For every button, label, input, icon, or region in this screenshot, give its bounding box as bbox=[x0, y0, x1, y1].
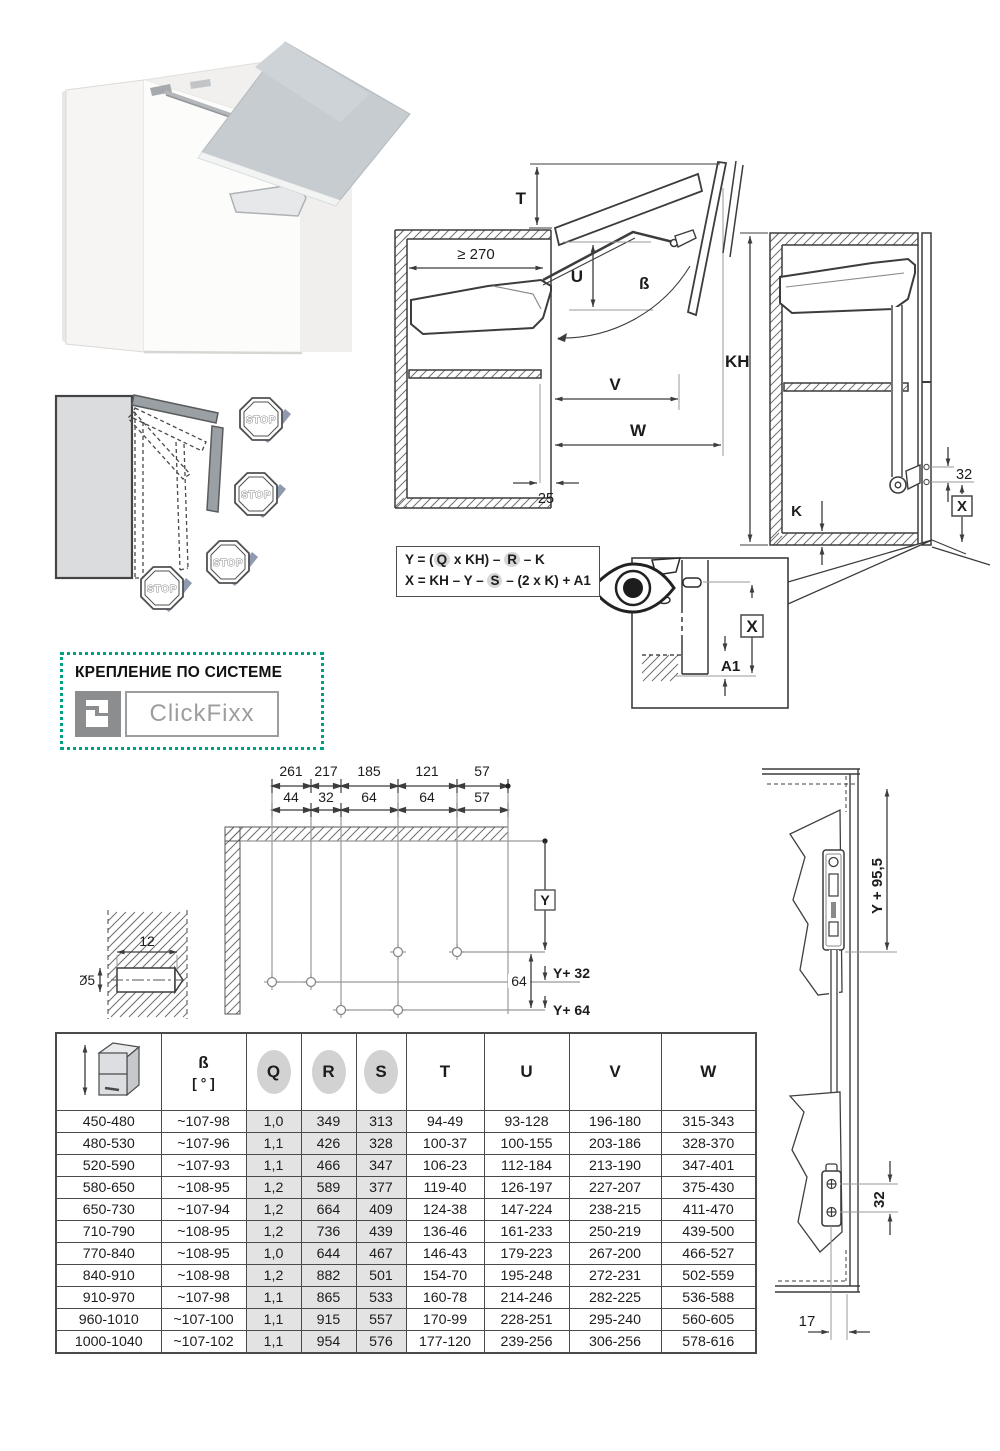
table-cell: 1,1 bbox=[246, 1331, 301, 1354]
table-cell: 313 bbox=[356, 1111, 406, 1133]
table-cell: 915 bbox=[301, 1309, 356, 1331]
table-cell: 578-616 bbox=[661, 1331, 756, 1354]
table-cell: 112-184 bbox=[484, 1155, 569, 1177]
r-oval: R bbox=[312, 1050, 346, 1094]
anchor-dot bbox=[505, 783, 510, 788]
table-cell: ~108-95 bbox=[161, 1243, 246, 1265]
table-cell: 710-790 bbox=[56, 1221, 161, 1243]
table-cell: 501 bbox=[356, 1265, 406, 1287]
drilling-pattern-diagram: 261 217 185 121 57 44 32 64 64 57 bbox=[80, 762, 670, 1034]
door-mid-position bbox=[207, 426, 223, 512]
catalog-page: STOP STOP STOP STOP T ≥ 270 bbox=[0, 0, 1000, 1451]
table-cell: 295-240 bbox=[569, 1309, 661, 1331]
construction-lines bbox=[272, 793, 580, 1014]
table-cell: 1,2 bbox=[246, 1177, 301, 1199]
detail-view: X A1 bbox=[600, 538, 995, 723]
col-header-r: R bbox=[301, 1033, 356, 1111]
table-cell: 126-197 bbox=[484, 1177, 569, 1199]
table-cell: 664 bbox=[301, 1199, 356, 1221]
table-cell: 93-128 bbox=[484, 1111, 569, 1133]
dim-label-u: U bbox=[571, 267, 583, 286]
clickfixx-logo-row: ClickFixx bbox=[75, 691, 309, 737]
cabinet-photo-illustration bbox=[40, 22, 412, 370]
col-header-s: S bbox=[356, 1033, 406, 1111]
table-cell: 349 bbox=[301, 1111, 356, 1133]
table-cell: ~108-95 bbox=[161, 1177, 246, 1199]
table-cell: 1,2 bbox=[246, 1265, 301, 1287]
dim-57b: 57 bbox=[474, 789, 490, 805]
table-cell: 770-840 bbox=[56, 1243, 161, 1265]
cabinet-bottom-wall-hatch bbox=[395, 498, 551, 508]
table-cell: 315-343 bbox=[661, 1111, 756, 1133]
dim-label-y32: Y+ 32 bbox=[553, 965, 590, 981]
dim-label-x: X bbox=[746, 617, 758, 636]
table-cell: 282-225 bbox=[569, 1287, 661, 1309]
table-cell: 589 bbox=[301, 1177, 356, 1199]
table-cell: ~107-93 bbox=[161, 1155, 246, 1177]
table-cell: 1000-1040 bbox=[56, 1331, 161, 1354]
table-cell: 106-23 bbox=[406, 1155, 484, 1177]
table-cell: 306-256 bbox=[569, 1331, 661, 1354]
eye-pupil bbox=[623, 578, 643, 598]
table-body: 450-480~107-981,034931394-4993-128196-18… bbox=[56, 1111, 756, 1354]
s-highlight: S bbox=[487, 573, 502, 588]
col-header-beta: ß [ ° ] bbox=[161, 1033, 246, 1111]
dim-185: 185 bbox=[357, 763, 381, 779]
table-cell: ~107-98 bbox=[161, 1111, 246, 1133]
section-diagram-open: T ≥ 270 U ß V W 25 bbox=[393, 158, 738, 550]
table-cell: 1,0 bbox=[246, 1243, 301, 1265]
closed-door-panel bbox=[922, 233, 931, 545]
cabinet-height-icon-cell bbox=[56, 1033, 161, 1111]
table-cell: 375-430 bbox=[661, 1177, 756, 1199]
drill-hole-section bbox=[117, 968, 175, 992]
table-cell: 910-970 bbox=[56, 1287, 161, 1309]
table-cell: ~107-98 bbox=[161, 1287, 246, 1309]
table-cell: 1,1 bbox=[246, 1155, 301, 1177]
table-cell: 213-190 bbox=[569, 1155, 661, 1177]
table-cell: 100-37 bbox=[406, 1133, 484, 1155]
table-cell: 1,2 bbox=[246, 1199, 301, 1221]
dim-32: 32 bbox=[318, 789, 334, 805]
table-cell: 250-219 bbox=[569, 1221, 661, 1243]
lift-mechanism bbox=[780, 259, 915, 313]
table-cell: 840-910 bbox=[56, 1265, 161, 1287]
table-cell: 480-530 bbox=[56, 1133, 161, 1155]
table-row: 770-840~108-951,0644467146-43179-223267-… bbox=[56, 1243, 756, 1265]
top-wall-hatch bbox=[770, 233, 918, 245]
table-cell: ~107-102 bbox=[161, 1331, 246, 1354]
table-cell: ~108-98 bbox=[161, 1265, 246, 1287]
table-cell: 179-223 bbox=[484, 1243, 569, 1265]
opening-stages-diagram: STOP STOP STOP STOP bbox=[42, 382, 324, 634]
table-cell: 347-401 bbox=[661, 1155, 756, 1177]
side-mounting-diagram: Y + 95,5 32 17 bbox=[750, 762, 995, 1347]
formula-box: Y = (Q x KH) – R – K X = KH – Y – S – (2… bbox=[396, 546, 600, 597]
mounting-title: КРЕПЛЕНИЕ ПО СИСТЕМЕ bbox=[75, 664, 309, 682]
table-cell: 954 bbox=[301, 1331, 356, 1354]
table-row: 710-790~108-951,2736439136-46161-233250-… bbox=[56, 1221, 756, 1243]
table-cell: 409 bbox=[356, 1199, 406, 1221]
dim-label-a1: A1 bbox=[721, 658, 740, 675]
dim-label-beta: ß bbox=[639, 274, 649, 293]
table-cell: 650-730 bbox=[56, 1199, 161, 1221]
table-cell: 161-233 bbox=[484, 1221, 569, 1243]
table-cell: 267-200 bbox=[569, 1243, 661, 1265]
table-row: 450-480~107-981,034931394-4993-128196-18… bbox=[56, 1111, 756, 1133]
dim-label-t: T bbox=[516, 189, 527, 208]
clickfixx-wordmark-frame: ClickFixx bbox=[125, 691, 279, 737]
panel-hatch bbox=[108, 912, 187, 1017]
dim-label-y: Y bbox=[540, 892, 550, 908]
mount-screw bbox=[924, 479, 929, 484]
table-header-row: ß [ ° ] Q R S T U V W bbox=[56, 1033, 756, 1111]
stop-icon: STOP bbox=[207, 541, 258, 586]
dim-label-12: 12 bbox=[139, 933, 155, 949]
dim-label-kh: KH bbox=[725, 352, 750, 371]
cabinet-left-wall-hatch bbox=[395, 230, 407, 508]
stop-label: STOP bbox=[147, 583, 177, 595]
table-cell: 502-559 bbox=[661, 1265, 756, 1287]
shelf-hatch bbox=[410, 370, 541, 378]
table-cell: 272-231 bbox=[569, 1265, 661, 1287]
table-row: 840-910~108-981,2882501154-70195-248272-… bbox=[56, 1265, 756, 1287]
callout-leader bbox=[932, 540, 966, 554]
cabinet-side-panel bbox=[66, 80, 144, 352]
table-cell: 1,1 bbox=[246, 1133, 301, 1155]
dim-chain-row2 bbox=[272, 803, 508, 817]
beta-unit: [ ° ] bbox=[162, 1075, 246, 1091]
table-cell: ~107-96 bbox=[161, 1133, 246, 1155]
q-oval: Q bbox=[257, 1050, 291, 1094]
dim-label-y955: Y + 95,5 bbox=[869, 858, 886, 914]
rail-spring bbox=[831, 902, 836, 918]
lift-mechanism bbox=[411, 280, 551, 334]
stop-label: STOP bbox=[246, 414, 276, 426]
table-cell: 154-70 bbox=[406, 1265, 484, 1287]
q-highlight: Q bbox=[434, 552, 451, 567]
table-cell: 580-650 bbox=[56, 1177, 161, 1199]
table-row: 960-1010~107-1001,1915557170-99228-25129… bbox=[56, 1309, 756, 1331]
r-highlight: R bbox=[504, 552, 520, 567]
top-panel-hatch bbox=[225, 827, 508, 841]
dim-261: 261 bbox=[279, 763, 303, 779]
table-cell: 439 bbox=[356, 1221, 406, 1243]
table-row: 520-590~107-931,1466347106-23112-184213-… bbox=[56, 1155, 756, 1177]
table-row: 580-650~108-951,2589377119-40126-197227-… bbox=[56, 1177, 756, 1199]
dim-label-k: K bbox=[791, 503, 802, 520]
table-cell: 1,0 bbox=[246, 1111, 301, 1133]
table-cell: 227-207 bbox=[569, 1177, 661, 1199]
dim-label-v: V bbox=[609, 375, 621, 394]
dim-label-depth: ≥ 270 bbox=[457, 246, 494, 263]
table-row: 480-530~107-961,1426328100-37100-155203-… bbox=[56, 1133, 756, 1155]
cabinet-top-wall-hatch bbox=[395, 230, 551, 239]
dim-217: 217 bbox=[314, 763, 338, 779]
stop-label: STOP bbox=[241, 489, 271, 501]
cabinet-side bbox=[56, 396, 132, 578]
table-cell: 328 bbox=[356, 1133, 406, 1155]
dim-64a: 64 bbox=[361, 789, 377, 805]
table-cell: 882 bbox=[301, 1265, 356, 1287]
table-cell: 466 bbox=[301, 1155, 356, 1177]
callout-pointer bbox=[788, 540, 932, 604]
table-row: 650-730~107-941,2664409124-38147-224238-… bbox=[56, 1199, 756, 1221]
table-cell: 466-527 bbox=[661, 1243, 756, 1265]
door-positions-dashed bbox=[128, 408, 206, 578]
table-row: 1000-1040~107-1021,1954576177-120239-256… bbox=[56, 1331, 756, 1354]
table-cell: 203-186 bbox=[569, 1133, 661, 1155]
dim-label-y64: Y+ 64 bbox=[553, 1002, 590, 1018]
table-cell: 347 bbox=[356, 1155, 406, 1177]
dim-57: 57 bbox=[474, 763, 490, 779]
table-cell: 160-78 bbox=[406, 1287, 484, 1309]
col-header-w: W bbox=[661, 1033, 756, 1111]
table-cell: 533 bbox=[356, 1287, 406, 1309]
col-header-v: V bbox=[569, 1033, 661, 1111]
door-bracket bbox=[675, 230, 696, 247]
beta-symbol: ß bbox=[162, 1053, 246, 1073]
table-cell: 439-500 bbox=[661, 1221, 756, 1243]
table-cell: 239-256 bbox=[484, 1331, 569, 1354]
table-cell: 560-605 bbox=[661, 1309, 756, 1331]
dim-44: 44 bbox=[283, 789, 299, 805]
cabinet-height-icon bbox=[77, 1037, 141, 1103]
arm-channel-bg bbox=[891, 307, 903, 477]
dim-64b: 64 bbox=[419, 789, 435, 805]
table-cell: 450-480 bbox=[56, 1111, 161, 1133]
clickfixx-wordmark: ClickFixx bbox=[150, 700, 255, 728]
s-oval: S bbox=[364, 1050, 398, 1094]
table-cell: 238-215 bbox=[569, 1199, 661, 1221]
table-cell: 576 bbox=[356, 1331, 406, 1354]
dim-label-64: 64 bbox=[511, 973, 527, 989]
table-cell: 865 bbox=[301, 1287, 356, 1309]
table-cell: 136-46 bbox=[406, 1221, 484, 1243]
table-cell: 960-1010 bbox=[56, 1309, 161, 1331]
table-cell: 411-470 bbox=[661, 1199, 756, 1221]
mount-screw bbox=[924, 464, 929, 469]
table-cell: 426 bbox=[301, 1133, 356, 1155]
table-cell: 557 bbox=[356, 1309, 406, 1331]
table-cell: 520-590 bbox=[56, 1155, 161, 1177]
col-header-t: T bbox=[406, 1033, 484, 1111]
cabinet-outline bbox=[395, 230, 551, 508]
stop-label: STOP bbox=[213, 557, 243, 569]
table-cell: 214-246 bbox=[484, 1287, 569, 1309]
drill-holes bbox=[264, 944, 465, 1018]
stop-icon: STOP bbox=[141, 567, 192, 612]
table-cell: ~108-95 bbox=[161, 1221, 246, 1243]
door-edge-fragment bbox=[723, 161, 736, 253]
formula-y: Y = (Q x KH) – R – K bbox=[405, 550, 591, 571]
table-cell: 328-370 bbox=[661, 1133, 756, 1155]
table-cell: ~107-100 bbox=[161, 1309, 246, 1331]
dim-label-17: 17 bbox=[799, 1313, 816, 1330]
table-cell: 228-251 bbox=[484, 1309, 569, 1331]
dowel-pin bbox=[683, 578, 701, 587]
table-cell: 195-248 bbox=[484, 1265, 569, 1287]
table-cell: 644 bbox=[301, 1243, 356, 1265]
dim-121: 121 bbox=[415, 763, 439, 779]
door-open-position bbox=[132, 395, 218, 423]
table-cell: 147-224 bbox=[484, 1199, 569, 1221]
table-row: 910-970~107-981,1865533160-78214-246282-… bbox=[56, 1287, 756, 1309]
section-diagram-closed: KH 32 X K bbox=[722, 155, 995, 567]
table-cell: 177-120 bbox=[406, 1331, 484, 1354]
dim-label-25: 25 bbox=[538, 491, 554, 507]
table-cell: 119-40 bbox=[406, 1177, 484, 1199]
table-cell: 1,1 bbox=[246, 1309, 301, 1331]
clickfixx-logo-icon bbox=[75, 691, 121, 737]
dim-label-dia5: Ø5 bbox=[80, 973, 95, 988]
table-cell: 1,2 bbox=[246, 1221, 301, 1243]
spec-table-wrap: ß [ ° ] Q R S T U V W 450-480~107-981,03… bbox=[55, 1032, 757, 1354]
shelf-hatch bbox=[785, 383, 908, 391]
table-cell: 1,1 bbox=[246, 1287, 301, 1309]
dim-chain-row1 bbox=[272, 779, 508, 793]
stop-icon: STOP bbox=[240, 398, 291, 443]
col-header-u: U bbox=[484, 1033, 569, 1111]
col-header-q: Q bbox=[246, 1033, 301, 1111]
dim-label-32: 32 bbox=[871, 1191, 888, 1208]
table-cell: 94-49 bbox=[406, 1111, 484, 1133]
formula-x: X = KH – Y – S – (2 x K) + A1 bbox=[405, 571, 591, 592]
dim-label-x: X bbox=[957, 498, 967, 515]
table-cell: 536-588 bbox=[661, 1287, 756, 1309]
arm-hook bbox=[890, 477, 906, 493]
table-cell: 736 bbox=[301, 1221, 356, 1243]
mounting-system-box: КРЕПЛЕНИЕ ПО СИСТЕМЕ ClickFixx bbox=[60, 652, 324, 750]
table-cell: 170-99 bbox=[406, 1309, 484, 1331]
spec-table: ß [ ° ] Q R S T U V W 450-480~107-981,03… bbox=[55, 1032, 757, 1354]
stop-icon: STOP bbox=[235, 473, 286, 518]
dim-label-32: 32 bbox=[956, 467, 972, 483]
side-panel-hatch bbox=[225, 827, 240, 1014]
table-cell: 196-180 bbox=[569, 1111, 661, 1133]
dim-label-w: W bbox=[630, 421, 647, 440]
door-edge-fragment bbox=[730, 165, 743, 257]
table-cell: 124-38 bbox=[406, 1199, 484, 1221]
table-cell: ~107-94 bbox=[161, 1199, 246, 1221]
table-cell: 377 bbox=[356, 1177, 406, 1199]
table-cell: 146-43 bbox=[406, 1243, 484, 1265]
cabinet-bottom-edge bbox=[144, 352, 302, 353]
lift-arm-lower bbox=[543, 238, 635, 285]
table-cell: 467 bbox=[356, 1243, 406, 1265]
table-cell: 100-155 bbox=[484, 1133, 569, 1155]
